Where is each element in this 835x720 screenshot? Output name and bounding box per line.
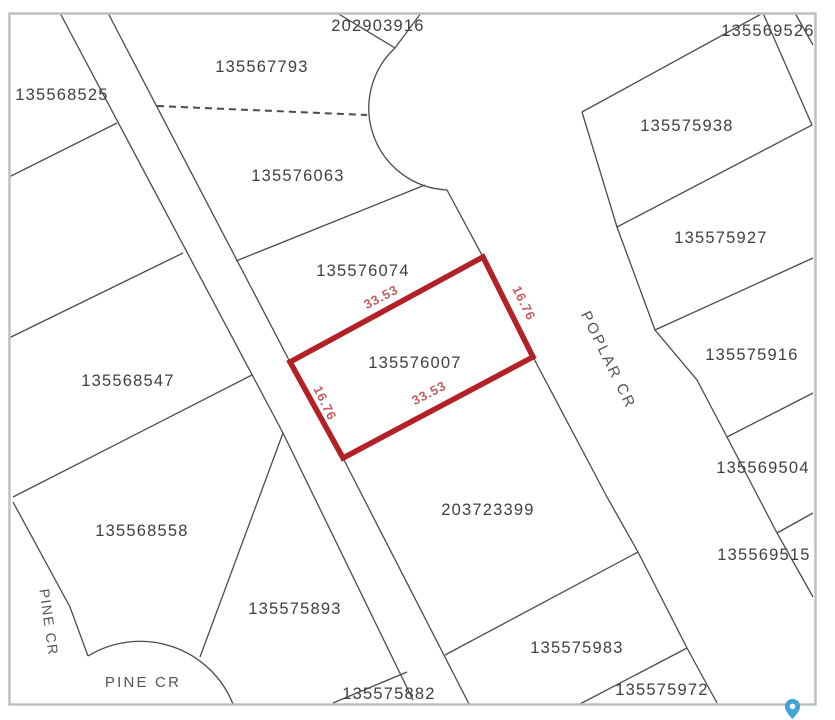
map-viewport[interactable]: 202903916 135569526 135567793 135568525 … bbox=[0, 0, 835, 720]
street-labels: PINE CR PINE CR POPLAR CR bbox=[36, 308, 639, 691]
highlighted-parcel-label: 135576007 bbox=[368, 354, 461, 372]
parcel-map-canvas[interactable]: 202903916 135569526 135567793 135568525 … bbox=[0, 0, 835, 720]
parcel-label: 135568547 bbox=[81, 372, 174, 390]
pin-hole bbox=[790, 704, 796, 710]
parcel-label: 135569504 bbox=[716, 459, 809, 477]
parcel-label: 135575938 bbox=[640, 117, 733, 135]
parcel-label: 135575972 bbox=[615, 681, 708, 699]
parcel-label: 135575916 bbox=[705, 346, 798, 364]
parcel-label: 135575927 bbox=[674, 229, 767, 247]
parcel-label: 135575893 bbox=[248, 600, 341, 618]
parcel-label: 135575983 bbox=[530, 639, 623, 657]
street-label-pine-cr-culdesac: PINE CR bbox=[105, 674, 181, 691]
parcel-label: 135568558 bbox=[95, 522, 188, 540]
map-pin-icon[interactable] bbox=[785, 699, 800, 719]
dashed-boundary bbox=[157, 106, 367, 115]
culdesac-arc-pine bbox=[88, 641, 233, 704]
culdesac-arc-north bbox=[369, 48, 447, 190]
parcel-label: 135576063 bbox=[251, 167, 344, 185]
parcel-label: 135569515 bbox=[717, 546, 810, 564]
parcel-label: 135576074 bbox=[316, 262, 409, 280]
street-label-poplar-cr: POPLAR CR bbox=[577, 308, 639, 411]
parcel-label: 135568525 bbox=[15, 86, 108, 104]
parcel-label: 203723399 bbox=[441, 501, 534, 519]
street-label-pine-cr-side: PINE CR bbox=[36, 588, 61, 657]
parcel-label: 135567793 bbox=[215, 58, 308, 76]
parcel-label: 135575882 bbox=[342, 685, 435, 703]
